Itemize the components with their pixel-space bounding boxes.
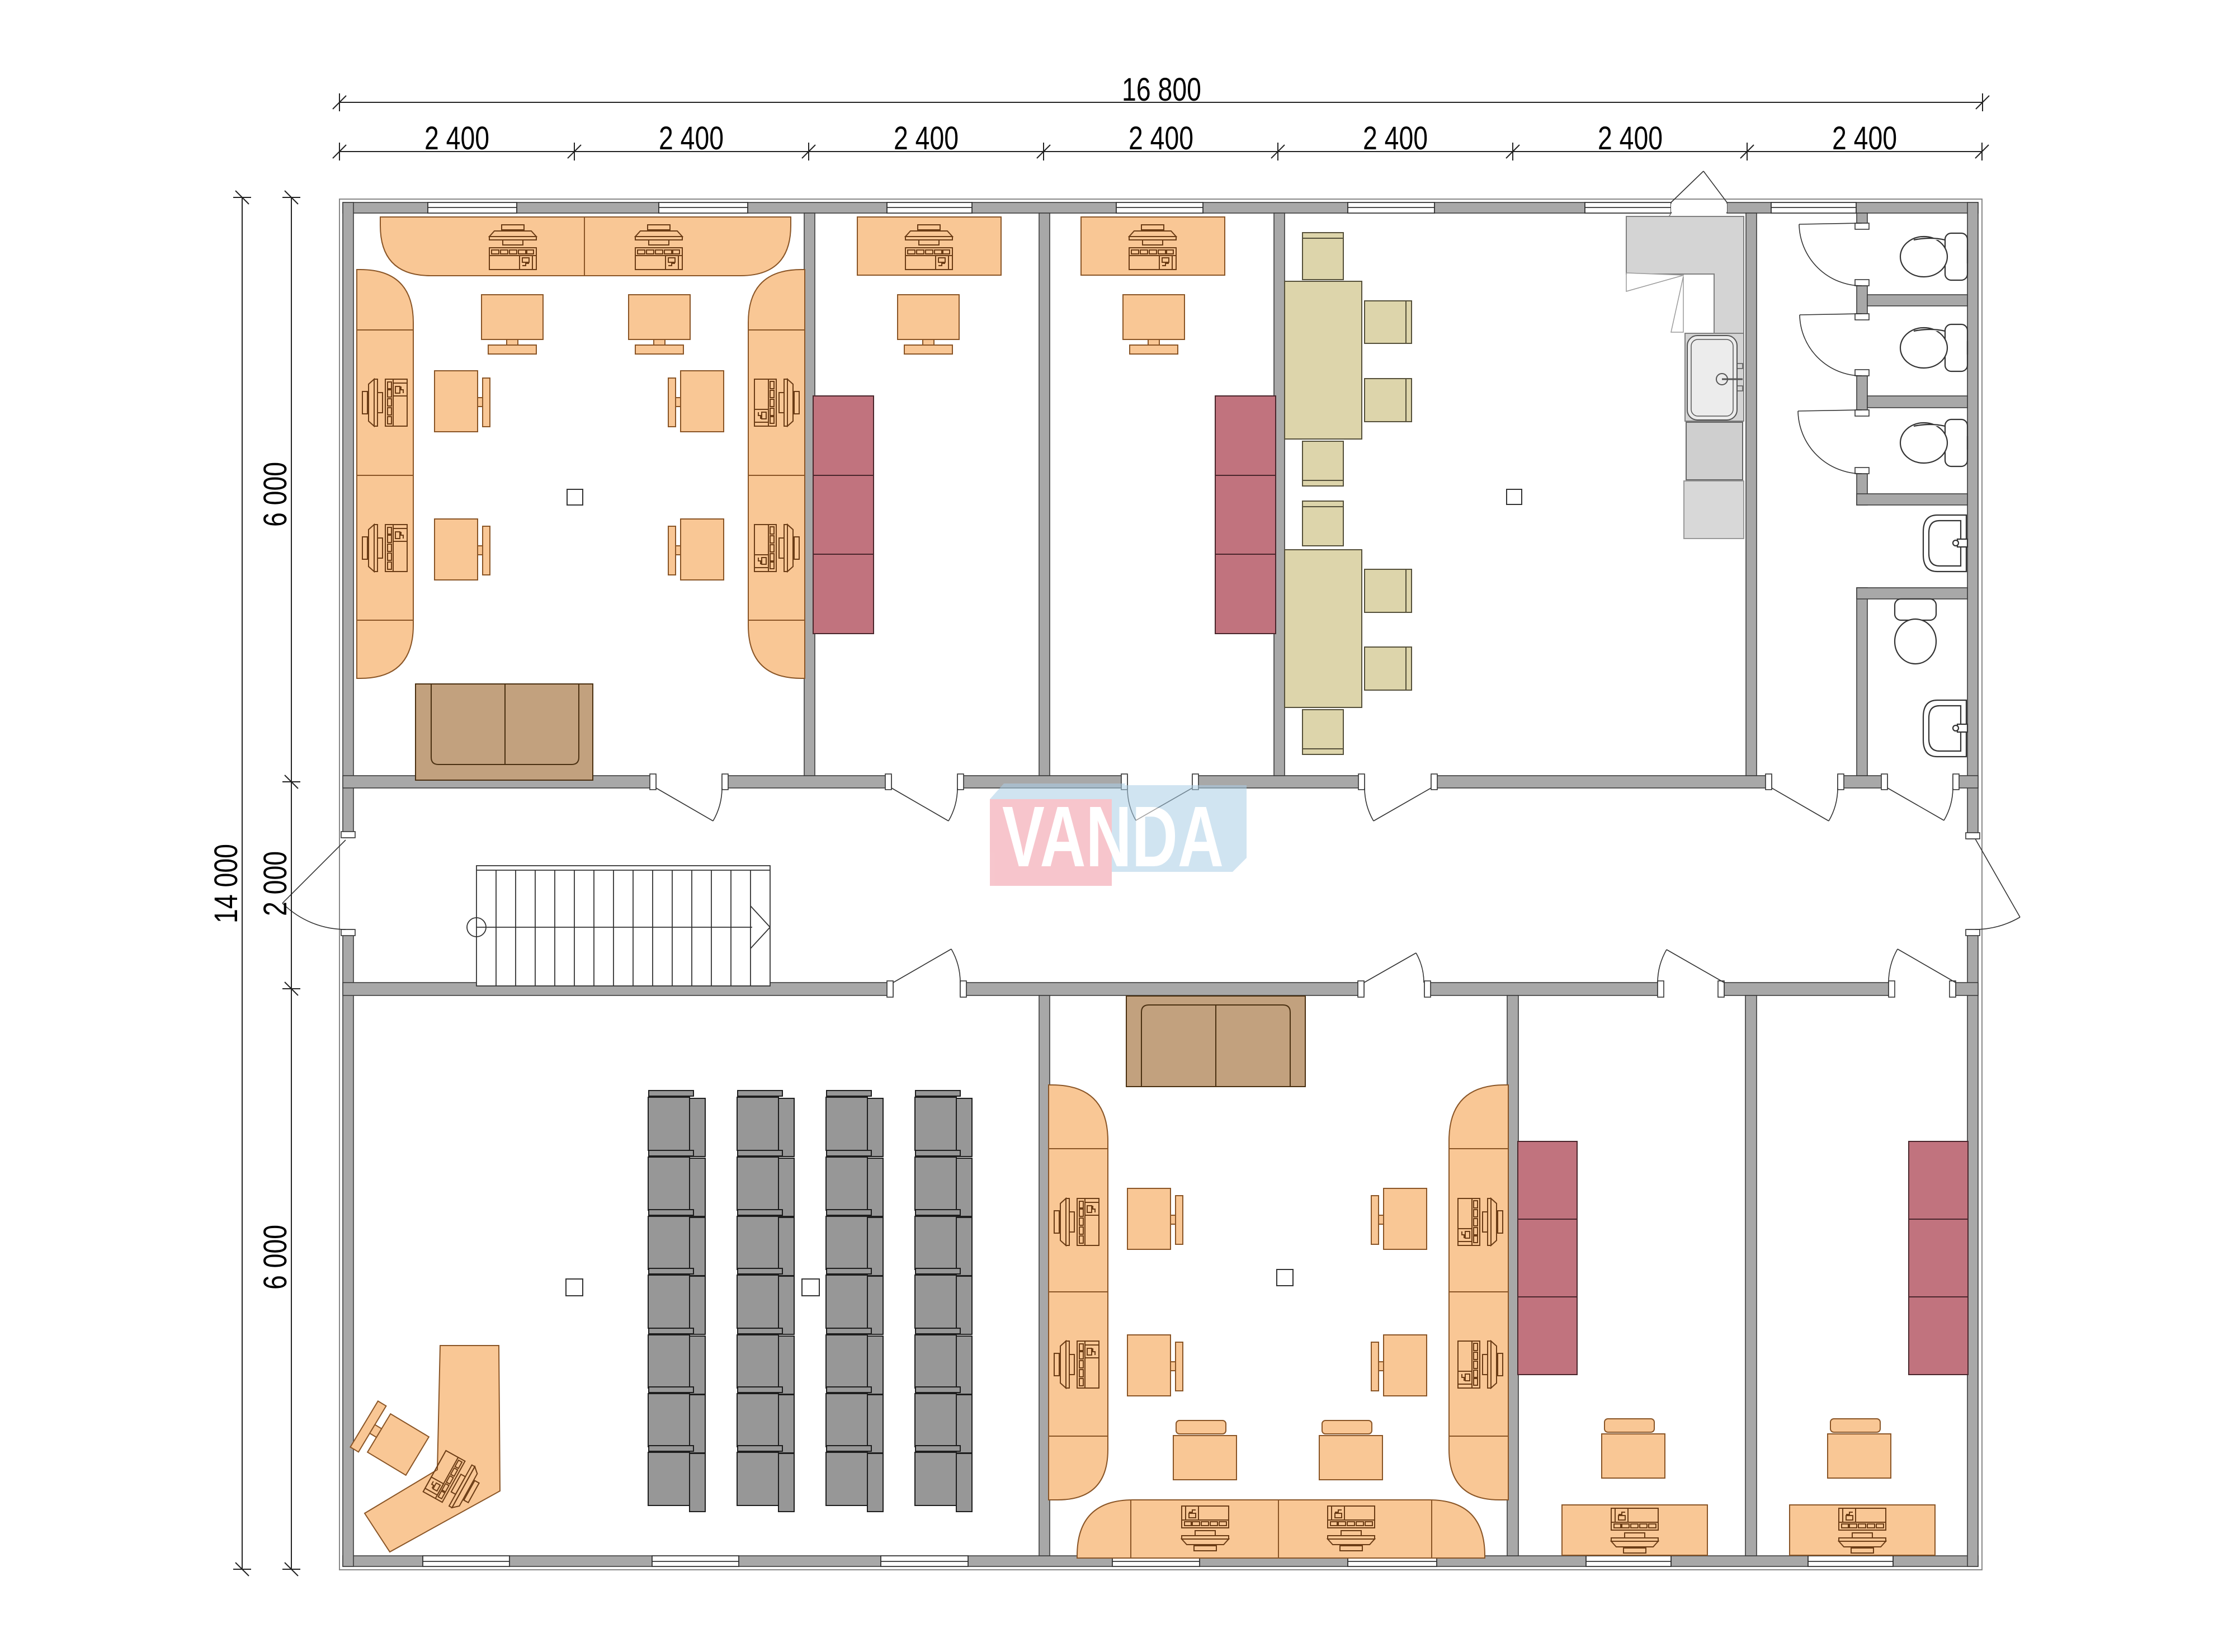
svg-text:2 400: 2 400 [1598, 120, 1663, 157]
svg-text:6 000: 6 000 [257, 462, 294, 527]
svg-text:2 400: 2 400 [894, 120, 959, 157]
svg-text:2 400: 2 400 [1129, 120, 1193, 157]
svg-text:2 400: 2 400 [424, 120, 489, 157]
svg-text:16 800: 16 800 [1122, 72, 1201, 108]
svg-text:2 400: 2 400 [659, 120, 724, 157]
svg-text:2 400: 2 400 [1832, 120, 1897, 157]
svg-text:14 000: 14 000 [208, 844, 244, 923]
svg-text:2 000: 2 000 [257, 851, 294, 916]
svg-text:6 000: 6 000 [257, 1225, 294, 1290]
svg-text:VANDA: VANDA [1002, 789, 1224, 885]
svg-text:2 400: 2 400 [1363, 120, 1428, 157]
